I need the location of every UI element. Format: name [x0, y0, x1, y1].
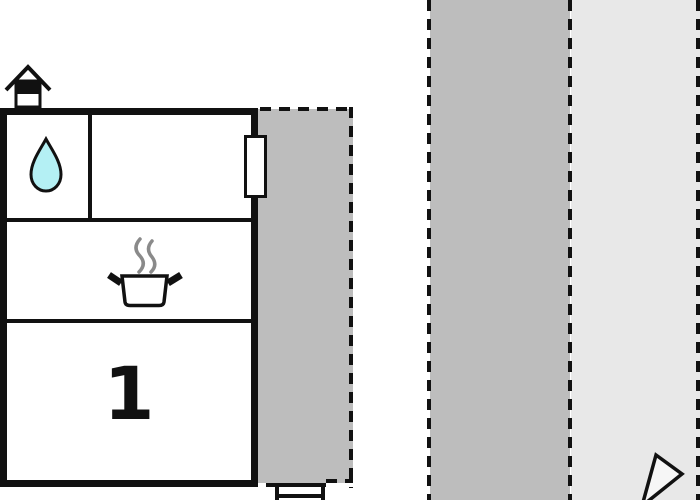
terrace-area — [258, 109, 353, 483]
water-drop-icon — [26, 136, 66, 196]
entrance-steps-tread — [275, 494, 325, 498]
cooking-pot-icon — [103, 230, 193, 310]
steam-line — [136, 239, 143, 272]
boundary-dashed-line-right — [696, 0, 700, 500]
boundary-dashed-line-left — [427, 0, 431, 500]
terrace-dashed-edge-right — [349, 107, 353, 488]
floor-plan-canvas: 1 — [0, 0, 700, 500]
lawn-strip — [571, 0, 700, 500]
interior-wall-bathroom — [88, 115, 92, 222]
boundary-dashed-line-middle — [568, 0, 572, 500]
interior-wall-upper — [7, 218, 251, 222]
garden-path-strip — [430, 0, 570, 500]
room-1-area: 1 — [7, 323, 251, 480]
terrace-dashed-edge-top — [260, 107, 353, 111]
terrace-dashed-edge-bottom — [326, 479, 353, 483]
house-entrance-icon — [2, 61, 54, 111]
steam-line — [149, 241, 155, 272]
terrace-door — [244, 135, 267, 198]
room-1-label: 1 — [104, 358, 155, 431]
compass-arrow-icon — [628, 446, 690, 500]
